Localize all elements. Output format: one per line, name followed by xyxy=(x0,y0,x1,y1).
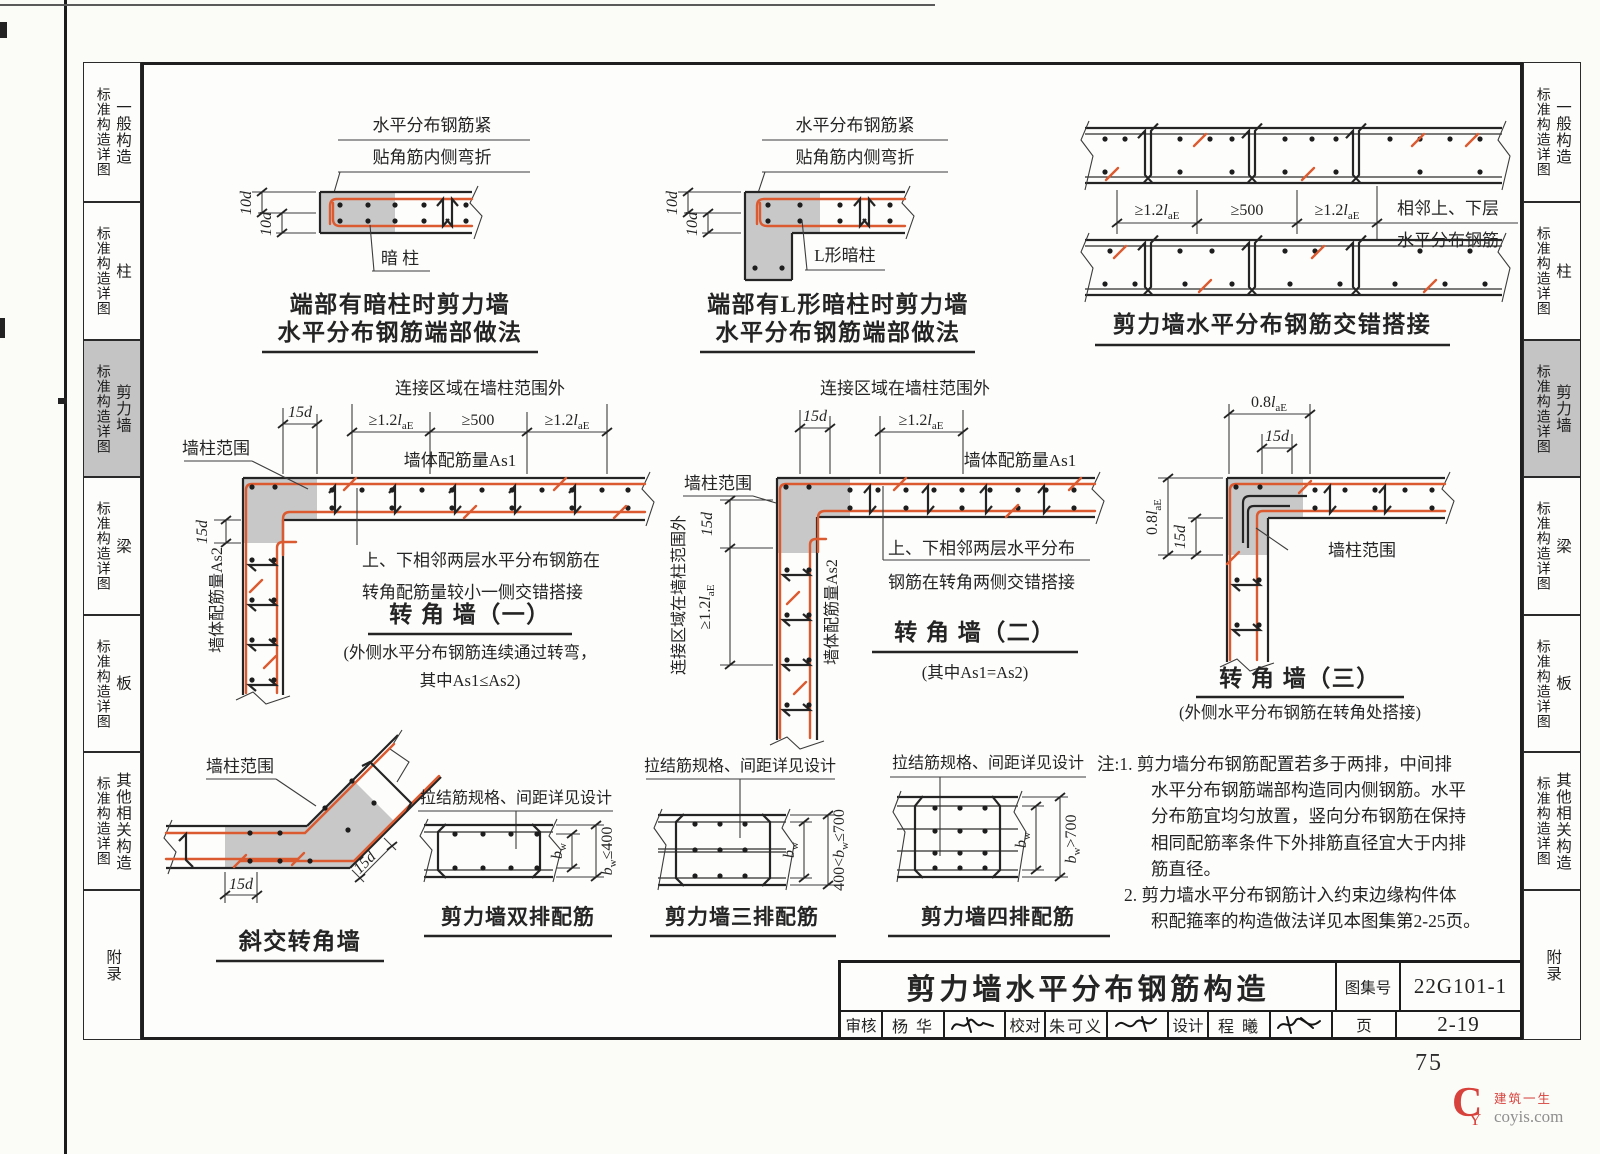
diagram-title: 转 角 墙（二） xyxy=(894,619,1056,645)
page-number-value: 2-19 xyxy=(1395,1012,1520,1037)
dim-500: ≥500 xyxy=(1231,202,1264,219)
dim-10d: 10d xyxy=(238,190,255,215)
scan-edge-mark xyxy=(0,318,5,338)
sidebar-left-tab-appendix: 附录 xyxy=(83,890,141,1040)
sidebar-right-tab-shear-wall: 标准构造详图 剪力墙 xyxy=(1523,340,1581,477)
diagram-title: 剪力墙水平分布钢筋交错搭接 xyxy=(1113,311,1432,337)
diagram-corner-wall-1: 连接区域在墙柱范围外 15d ≥1.2laE ≥500 ≥1.2laE 墙体配筋… xyxy=(150,372,665,707)
tab-group-label: 标准构造详图 xyxy=(94,87,109,177)
tab-category-label: 板 xyxy=(114,675,130,692)
signature-scribble xyxy=(1275,1014,1327,1036)
diagram-title: 转 角 墙（一） xyxy=(389,601,551,627)
diagram-title-line2: 水平分布钢筋端部做法 xyxy=(278,319,523,345)
end-hook-left xyxy=(676,814,684,886)
title-block-row-2: 审核 杨 华 校对 朱可义 设计 程 曦 xyxy=(841,1012,1520,1037)
diagram-corner-wall-3: 0.8laE 15d 0.8laE 15d 墙柱 xyxy=(1100,378,1530,723)
review-label: 审核 xyxy=(841,1012,881,1037)
label-tie-spec: 拉结筋规格、间距详见设计 xyxy=(420,789,612,807)
tab-category-label: 一般构造 xyxy=(1554,99,1570,165)
callout-bend-line1: 水平分布钢筋紧 xyxy=(373,116,492,135)
dim-lap-length: ≥1.2laE xyxy=(1315,202,1360,222)
page-label: 页 xyxy=(1331,1012,1395,1037)
dim-400-bw-700: 400<bw≤700 xyxy=(831,809,851,891)
diagram-title: 剪力墙三排配筋 xyxy=(665,905,819,929)
label-wall-column-range: 墙柱范围 xyxy=(1328,541,1396,560)
note-line: 相同配筋率条件下外排筋直径宜大于内排 xyxy=(1097,830,1527,856)
scan-edge-mark xyxy=(58,398,67,404)
watermark-site: coyis.com xyxy=(1494,1107,1563,1127)
dim-08lae: 0.8laE xyxy=(1251,394,1287,414)
tab-category-label: 其他相关构造 xyxy=(114,772,130,871)
break-symbol xyxy=(893,791,905,882)
callout-bend-line1: 水平分布钢筋紧 xyxy=(796,116,915,135)
tab-category-label: 柱 xyxy=(1554,263,1570,280)
watermark: C Y 建筑一生 coyis.com xyxy=(1452,1086,1563,1132)
tab-group-label: 标准构造详图 xyxy=(1534,226,1549,316)
dim-10d: 10d xyxy=(258,211,275,236)
note-line: 水平分布钢筋端部构造同内侧钢筋。水平 xyxy=(1097,777,1527,803)
label-tie-spec: 拉结筋规格、间距详见设计 xyxy=(644,757,836,775)
signature-scribble xyxy=(1112,1014,1164,1036)
signature-scribble xyxy=(949,1014,1001,1036)
break-symbol xyxy=(420,819,432,882)
diagram-title: 剪力墙双排配筋 xyxy=(441,905,595,929)
diagram-title-line1: 端部有L形暗柱时剪力墙 xyxy=(707,291,969,317)
note-stagger-side-1: 上、下相邻两层水平分布钢筋在 xyxy=(362,551,600,570)
diagram-corner-wall-2: 连接区域在墙柱范围外 15d ≥1.2laE 墙体配筋量As1 xyxy=(660,372,1105,767)
diagram-title: 斜交转角墙 xyxy=(238,928,362,954)
dim-bw-gt-700: bw>700 xyxy=(1063,815,1083,864)
note-line: 2. 剪力墙水平分布钢筋计入约束边缘构件体 xyxy=(1097,882,1527,908)
designer-signature xyxy=(1269,1012,1331,1037)
diagram-end-l-column: 水平分布钢筋紧 贴角筋内侧弯折 10d 10d L形暗柱 端部有L形暗柱时剪力墙 xyxy=(620,105,1020,355)
diagram-title-line1: 端部有暗柱时剪力墙 xyxy=(290,291,511,317)
end-hook-left xyxy=(915,796,923,878)
note-line: 积配箍率的构造做法详见本图集第2-25页。 xyxy=(1097,908,1527,934)
watermark-logo-icon: C Y xyxy=(1452,1086,1488,1132)
tab-group-label: 标准构造详图 xyxy=(94,776,109,866)
tab-group-label: 标准构造详图 xyxy=(1534,87,1549,177)
tab-category-label: 剪力墙 xyxy=(1554,384,1570,434)
callout-bend-line2: 贴角筋内侧弯折 xyxy=(796,148,915,167)
tab-group-label: 标准构造详图 xyxy=(1534,776,1549,866)
break-symbol xyxy=(164,820,176,874)
sidebar-left-tab-shear-wall: 标准构造详图 剪力墙 xyxy=(83,340,141,477)
dim-15d-vertical: 15d xyxy=(194,519,211,544)
note-stagger-side-2: 转角配筋量较小一侧交错搭接 xyxy=(362,583,583,602)
tab-group-label: 标准构造详图 xyxy=(1534,501,1549,591)
tab-category-label: 一般构造 xyxy=(114,99,130,165)
check-label: 校对 xyxy=(1004,1012,1044,1037)
rebar-inner xyxy=(1257,511,1445,660)
diagram-subtitle-1: (外侧水平分布钢筋连续通过转弯， xyxy=(344,643,597,662)
reviewer-signature xyxy=(943,1012,1004,1037)
atlas-number-value: 22G101-1 xyxy=(1399,963,1520,1010)
sidebar-left-tab-beam: 标准构造详图 梁 xyxy=(83,477,141,615)
tab-group-label: 标准构造详图 xyxy=(1534,639,1549,729)
sidebar-left-tab-other: 标准构造详图 其他相关构造 xyxy=(83,752,141,890)
diagram-subtitle: (外侧水平分布钢筋在转角处搭接) xyxy=(1179,703,1421,722)
watermark-logo-y: Y xyxy=(1469,1110,1481,1130)
label-wall-column-range: 墙柱范围 xyxy=(182,439,250,458)
checker-name: 朱可义 xyxy=(1044,1012,1106,1037)
diagram-four-row: 拉结筋规格、间距详见设计 bw bw>700 剪力墙四排配筋 xyxy=(878,738,1130,943)
note-head-2: 2. xyxy=(1124,885,1137,905)
tab-category-label: 梁 xyxy=(114,538,130,555)
sheet-title: 剪力墙水平分布钢筋构造 xyxy=(841,963,1335,1010)
diagram-subtitle: (其中As1=As2) xyxy=(922,663,1028,682)
dim-lap-length: ≥1.2laE xyxy=(1135,202,1180,222)
break-symbol xyxy=(390,730,409,782)
note-stagger-both-2: 钢筋在转角两侧交错搭接 xyxy=(888,573,1075,592)
dim-bw-le-400: bw≤400 xyxy=(599,827,619,876)
note-line: 注:1. 剪力墙分布钢筋配置若多于两排，中间排 xyxy=(1097,751,1527,777)
dim-10d: 10d xyxy=(664,190,681,215)
scan-edge-mark xyxy=(0,22,7,38)
tab-group-label: 标准构造详图 xyxy=(94,226,109,316)
tab-category-label: 板 xyxy=(1554,675,1570,692)
tab-group-label: 标准构造详图 xyxy=(94,501,109,591)
sidebar-right-tab-column: 标准构造详图 柱 xyxy=(1523,202,1581,340)
dim-lap-length: ≥1.2laE xyxy=(545,412,590,432)
dim-lap-length: ≥1.2laE xyxy=(899,412,944,432)
diagram-two-row: 拉结筋规格、间距详见设计 bw bw≤400 剪力墙双排配筋 xyxy=(408,750,653,940)
note-1-line-1: 剪力墙分布钢筋配置若多于两排，中间排 xyxy=(1137,754,1452,774)
note-stagger-both-1: 上、下相邻两层水平分布 xyxy=(888,539,1075,558)
tie xyxy=(179,834,193,867)
dim-bw: bw xyxy=(549,843,569,859)
note-line: 筋直径。 xyxy=(1097,856,1527,882)
title-block-row-1: 剪力墙水平分布钢筋构造 图集号 22G101-1 xyxy=(841,963,1520,1012)
label-wall-column-range: 墙柱范围 xyxy=(206,757,274,776)
sidebar-right-tab-slab: 标准构造详图 板 xyxy=(1523,615,1581,752)
general-notes: 注:1. 剪力墙分布钢筋配置若多于两排，中间排 水平分布钢筋端部构造同内侧钢筋。… xyxy=(1097,751,1527,934)
reviewer-name: 杨 华 xyxy=(881,1012,943,1037)
end-hook-right xyxy=(992,796,1000,878)
dim-bw: bw xyxy=(781,842,801,858)
note-2-line-1: 剪力墙水平分布钢筋计入约束边缘构件体 xyxy=(1142,885,1457,905)
rebar-inner-vertical-hook xyxy=(277,542,296,693)
label-connection-zone-side: 连接区域在墙柱范围外 xyxy=(670,515,688,675)
label-l-column: L形暗柱 xyxy=(814,246,875,265)
diagram-staggered-lap: ≥1.2laE ≥500 ≥1.2laE 相邻上、下层 水平分布钢筋 剪力墙水平… xyxy=(1060,108,1522,353)
break-symbol xyxy=(470,186,482,239)
dim-lap-length: ≥1.2laE xyxy=(369,412,414,432)
dim-500: ≥500 xyxy=(462,412,495,429)
label-hidden-column: 暗 柱 xyxy=(381,249,419,268)
tab-group-label: 标准构造详图 xyxy=(1534,364,1549,454)
tab-group-label: 标准构造详图 xyxy=(94,364,109,454)
title-block: 剪力墙水平分布钢筋构造 图集号 22G101-1 审核 杨 华 校对 朱可义 设 xyxy=(838,960,1523,1040)
dim-bw: bw xyxy=(1013,832,1033,848)
scanned-standard-atlas-page: 标准构造详图 一般构造 标准构造详图 柱 标准构造详图 剪力墙 标准构造详图 梁… xyxy=(0,0,1600,1154)
folio-page-number: 75 xyxy=(1415,1050,1443,1077)
diagram-three-row: 拉结筋规格、间距详见设计 bw 400<bw≤700 剪力墙三排配筋 xyxy=(638,740,888,940)
book-spine-edge xyxy=(64,0,67,1154)
label-connection-zone: 连接区域在墙柱范围外 xyxy=(395,379,565,398)
diagram-end-hidden-column: 水平分布钢筋紧 贴角筋内侧弯折 10d 10d 暗 柱 端部有暗柱时剪力墙 水平… xyxy=(190,105,570,355)
note-head-1: 注:1. xyxy=(1097,754,1133,774)
sidebar-left-tab-slab: 标准构造详图 板 xyxy=(83,615,141,752)
tab-category-label: 其他相关构造 xyxy=(1554,772,1570,871)
sidebar-left-tab-general: 标准构造详图 一般构造 xyxy=(83,62,141,202)
tab-group-label: 标准构造详图 xyxy=(94,639,109,729)
diagram-title: 剪力墙四排配筋 xyxy=(921,905,1075,929)
break-symbol xyxy=(642,472,654,526)
label-as1: 墙体配筋量As1 xyxy=(964,451,1076,470)
tab-category-label: 梁 xyxy=(1554,538,1570,555)
sidebar-right-tab-general: 标准构造详图 一般构造 xyxy=(1523,62,1581,202)
label-tie-spec: 拉结筋规格、间距详见设计 xyxy=(892,754,1084,772)
dim-15d-side: 15d xyxy=(699,511,716,536)
atlas-number-label: 图集号 xyxy=(1335,963,1399,1010)
dim-15d: 15d xyxy=(1265,428,1290,445)
diagram-title-line2: 水平分布钢筋端部做法 xyxy=(716,319,961,345)
diagram-title: 转 角 墙（三） xyxy=(1219,665,1381,691)
tab-category-label: 附录 xyxy=(104,949,120,982)
sidebar-right-tab-beam: 标准构造详图 梁 xyxy=(1523,477,1581,615)
dim-15d: 15d xyxy=(288,404,313,421)
watermark-brand: 建筑一生 xyxy=(1494,1091,1563,1107)
sidebar-right-tab-appendix: 附录 xyxy=(1523,890,1581,1040)
label-as2: 墙体配筋量As2 xyxy=(823,559,841,665)
label-wall-column-range: 墙柱范围 xyxy=(684,474,752,493)
checker-signature xyxy=(1106,1012,1167,1037)
dim-15d-side: 15d xyxy=(1172,524,1189,549)
sidebar-left-tab-column: 标准构造详图 柱 xyxy=(83,202,141,340)
tab-category-label: 柱 xyxy=(114,263,130,280)
end-hook-right xyxy=(762,814,770,886)
designer-name: 程 曦 xyxy=(1207,1012,1269,1037)
dim-15d: 15d xyxy=(803,408,828,425)
label-connection-zone: 连接区域在墙柱范围外 xyxy=(820,379,990,398)
dim-lap-length-side: ≥1.2laE xyxy=(697,584,717,629)
note-line: 分布筋宜均匀放置，竖向分布钢筋在保持 xyxy=(1097,803,1527,829)
tab-category-label: 附录 xyxy=(1544,949,1560,982)
watermark-text: 建筑一生 coyis.com xyxy=(1494,1091,1563,1128)
callout-bend-line2: 贴角筋内侧弯折 xyxy=(373,148,492,167)
tab-category-label: 剪力墙 xyxy=(114,384,130,434)
dim-08lae-side: 0.8laE xyxy=(1144,499,1164,535)
label-as1: 墙体配筋量As1 xyxy=(404,451,516,470)
diagram-subtitle-2: 其中As1≤As2) xyxy=(420,671,521,690)
break-symbol xyxy=(1442,472,1454,524)
dim-10d: 10d xyxy=(684,211,701,236)
sidebar-right-tab-other: 标准构造详图 其他相关构造 xyxy=(1523,752,1581,890)
dim-15d: 15d xyxy=(229,876,254,893)
design-label: 设计 xyxy=(1167,1012,1207,1037)
label-adjacent-layers-1: 相邻上、下层 xyxy=(1397,199,1499,218)
scan-top-edge xyxy=(0,4,935,6)
label-as2: 墙体配筋量As2 xyxy=(208,547,226,653)
break-symbol xyxy=(902,186,914,239)
